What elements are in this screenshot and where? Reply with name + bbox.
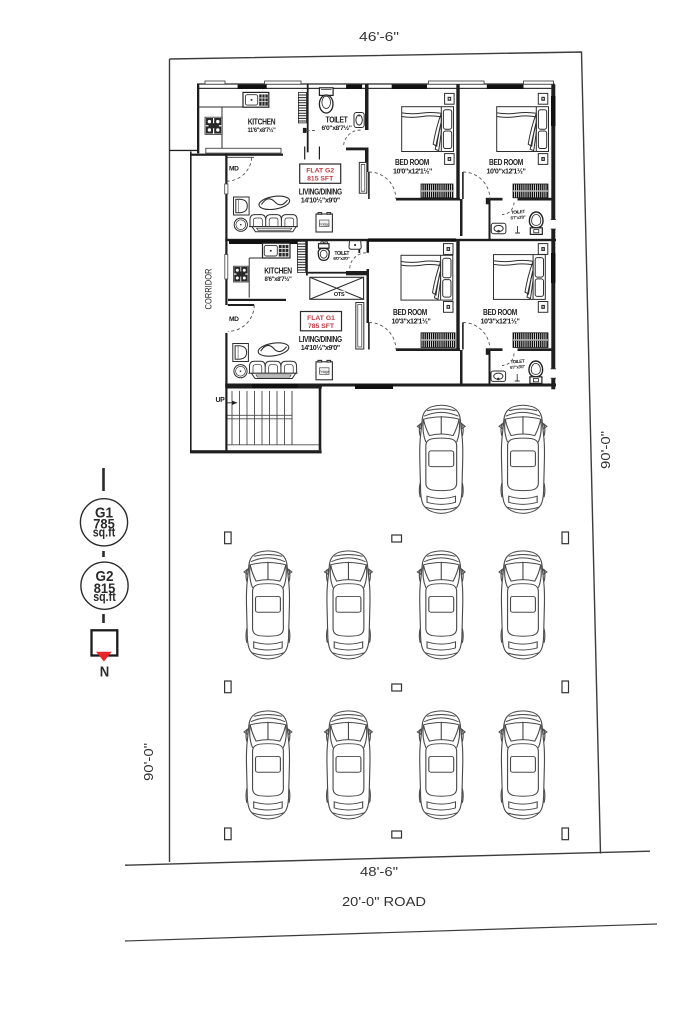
svg-text:10'3"x12'1½": 10'3"x12'1½" xyxy=(392,317,431,325)
svg-text:14'10½"x9'0": 14'10½"x9'0" xyxy=(301,196,340,204)
svg-text:CORRIDOR: CORRIDOR xyxy=(204,268,215,309)
svg-text:785 SFT: 785 SFT xyxy=(308,323,335,330)
svg-text:sq.ft: sq.ft xyxy=(93,590,116,604)
svg-text:20'-0" ROAD: 20'-0" ROAD xyxy=(342,894,426,909)
svg-text:BED ROOM: BED ROOM xyxy=(393,307,427,317)
svg-text:90'-0": 90'-0" xyxy=(141,743,156,781)
svg-text:FLAT G2: FLAT G2 xyxy=(306,167,334,174)
svg-text:815 SFT: 815 SFT xyxy=(307,175,334,182)
svg-text:LIVING/DINING: LIVING/DINING xyxy=(299,186,343,196)
svg-text:14'10½"x9'0": 14'10½"x9'0" xyxy=(301,344,340,352)
svg-text:MD: MD xyxy=(229,166,239,173)
svg-text:LIVING/DINING: LIVING/DINING xyxy=(299,334,343,344)
svg-text:48'-6": 48'-6" xyxy=(360,864,398,879)
svg-text:10'0"x12'1½": 10'0"x12'1½" xyxy=(487,167,526,175)
svg-text:BED ROOM: BED ROOM xyxy=(489,157,523,167)
svg-text:BED ROOM: BED ROOM xyxy=(395,157,429,167)
svg-text:UP: UP xyxy=(216,397,226,404)
svg-text:6'0"x3'0": 6'0"x3'0" xyxy=(333,256,349,261)
svg-text:10'0"x12'1½": 10'0"x12'1½" xyxy=(393,167,432,175)
svg-text:46'-6": 46'-6" xyxy=(359,29,399,44)
svg-text:10'3"x12'1½": 10'3"x12'1½" xyxy=(481,317,520,325)
svg-text:FLAT G1: FLAT G1 xyxy=(307,315,335,322)
svg-text:MD: MD xyxy=(229,316,239,323)
svg-text:sq.ft: sq.ft xyxy=(93,526,116,540)
svg-text:6'0"x8'7½": 6'0"x8'7½" xyxy=(322,124,352,132)
svg-text:BED ROOM: BED ROOM xyxy=(483,307,517,317)
svg-text:Fridge: Fridge xyxy=(319,222,329,226)
svg-text:KITCHEN: KITCHEN xyxy=(248,118,276,127)
svg-text:8'6"x8'7½": 8'6"x8'7½" xyxy=(265,275,292,283)
svg-text:N: N xyxy=(100,664,110,680)
svg-text:Fridge: Fridge xyxy=(319,370,329,374)
svg-text:OTS: OTS xyxy=(334,292,345,298)
svg-text:6'7"x3'0": 6'7"x3'0" xyxy=(510,214,525,220)
svg-text:KITCHEN: KITCHEN xyxy=(264,267,292,276)
svg-text:90'-0": 90'-0" xyxy=(598,431,613,469)
svg-text:TOILET: TOILET xyxy=(326,116,348,125)
svg-text:11'6"x8'7½": 11'6"x8'7½" xyxy=(248,126,276,134)
svg-text:6'7"x3'0": 6'7"x3'0" xyxy=(510,364,525,370)
